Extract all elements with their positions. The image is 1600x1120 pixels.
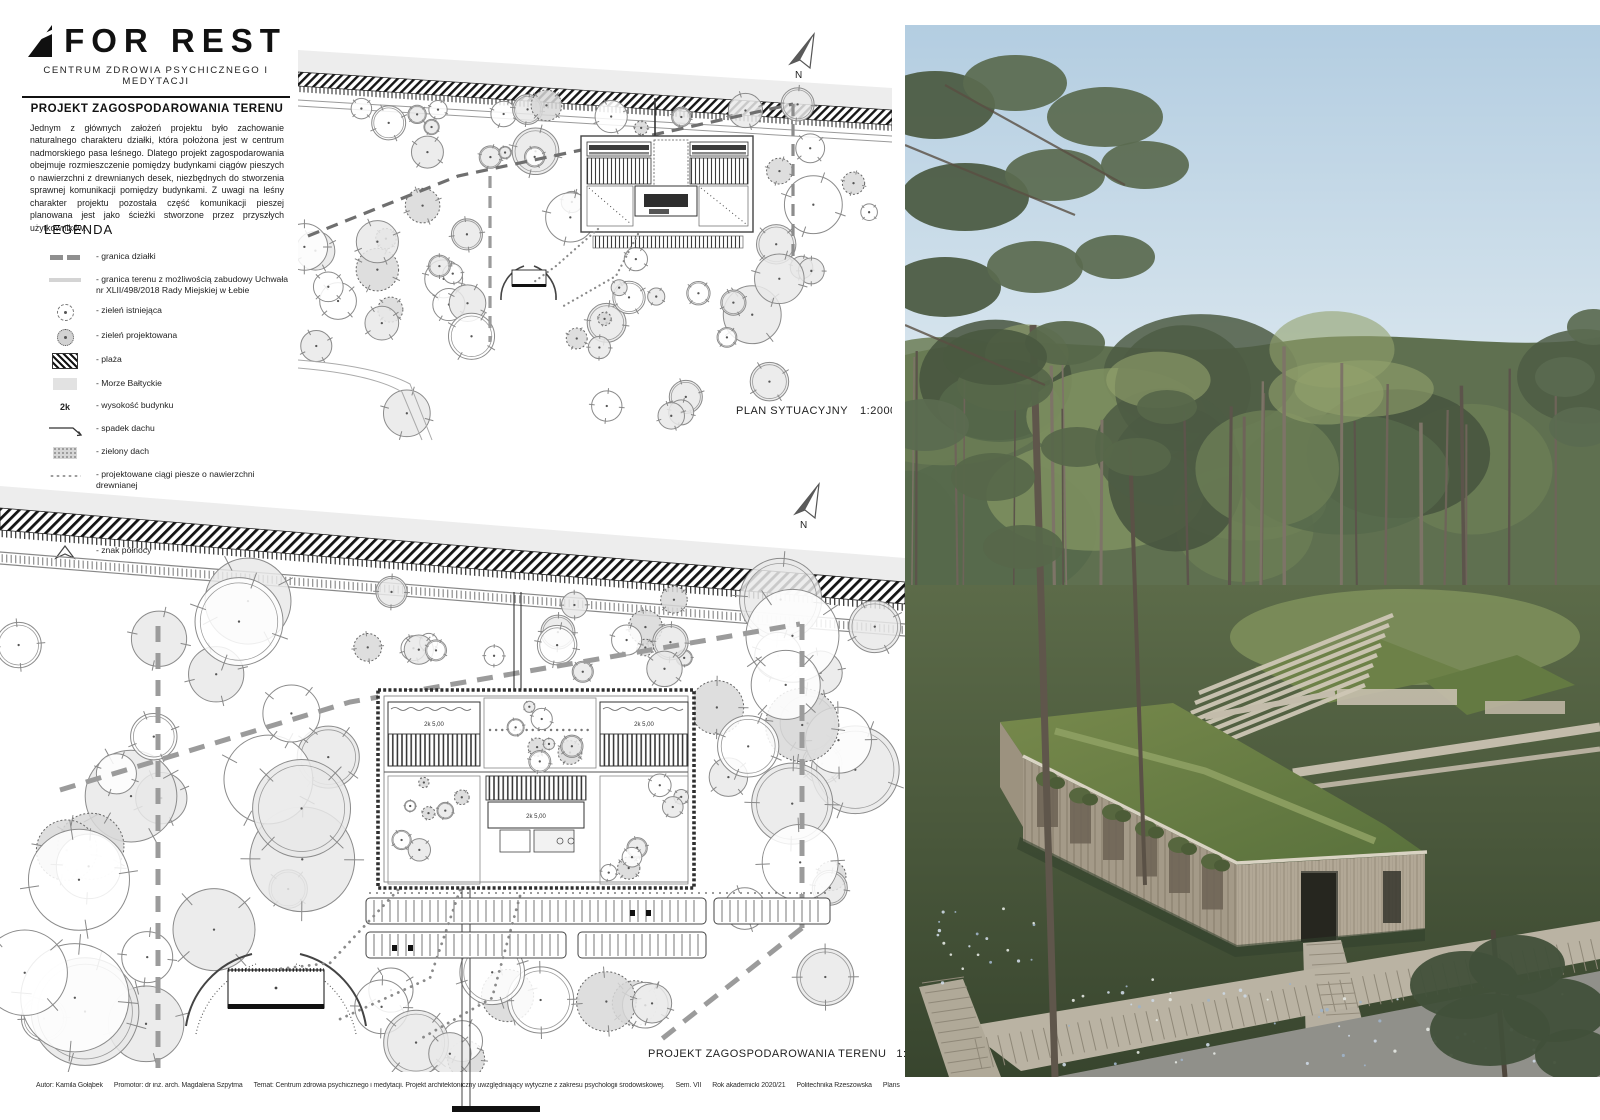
credit-segment: Politechnika Rzeszowska [796,1082,871,1089]
legend-item: - granica działki [44,250,292,265]
wing-label-center: 2k 5,00 [526,814,546,820]
intro-paragraph: Jednym z głównych założeń projektu było … [30,122,284,234]
roof-slope-icon [44,422,86,438]
intro-section: PROJEKT ZAGOSPODAROWANIA TERENU Jednym z… [30,103,284,234]
legend-item-label: - zieleń projektowana [96,329,177,342]
credit-segment: Promotor: dr inż. arch. Magdalena Szpytm… [114,1082,243,1089]
legend-item-label: - wysokość budynku [96,399,173,412]
plan1000-caption: PROJEKT ZAGOSPODAROWANIA TERENU1:1000 [648,1048,905,1060]
forrest-logo-icon [25,23,55,59]
legend-item: - zieleń istniejąca [44,304,292,321]
brand-subtitle: CENTRUM ZDROWIA PSYCHICZNEGO I MEDYTACJI [22,65,290,87]
legend-item-label: - plaża [96,353,122,366]
plan1000-north-label: N [800,520,807,531]
legend-item: - Morze Bałtyckie [44,377,292,392]
legend-item: - granica terenu z możliwością zabudowy … [44,273,292,297]
presentation-board: FOR REST CENTRUM ZDROWIA PSYCHICZNEGO I … [0,0,1600,1120]
wing-label-left: 2k 5,00 [424,722,444,728]
plan2000-north-arrow: N [790,34,814,81]
beach-hatch-icon [44,353,86,369]
intro-heading: PROJEKT ZAGOSPODAROWANIA TERENU [30,103,284,115]
credit-segment: Sem. VII [676,1082,702,1089]
site-plan-1-1000: 2k 5,00 2k 5,00 2k 5,00 [0,458,905,1072]
legend-item-label: - spadek dachu [96,422,155,435]
legend-item: - plaża [44,353,292,369]
plan2000-building [581,136,753,248]
plan1000-north-arrow: N [795,484,819,531]
legend-title: LEGENDA [44,222,292,237]
legend-item-label: - granica terenu z możliwością zabudowy … [96,273,292,297]
site-plan-1-2000: N PLAN SYTUACYJNY1:2000 [298,24,892,442]
buildable-line-icon [44,273,86,288]
height-icon: 2k [44,399,86,414]
credits-bar: Autor: Kamila GołąbekPromotor: dr inż. a… [36,1082,900,1089]
road-continuation [430,1072,560,1118]
plan1000-parking [366,892,830,958]
credit-segment: Temat: Centrum zdrowia psychicznego i me… [254,1082,665,1089]
render-visualization [905,25,1600,1077]
logo-text: FOR REST [64,22,287,60]
brand-block: FOR REST CENTRUM ZDROWIA PSYCHICZNEGO I … [22,22,290,98]
sea-icon [44,377,86,392]
boundary-dash-icon [44,250,86,265]
wing-label-right: 2k 5,00 [634,722,654,728]
credit-segment: Rok akademicki 2020/21 [712,1082,785,1089]
plan2000-north-label: N [795,70,802,81]
legend-item-label: - zieleń istniejąca [96,304,162,317]
legend-item-label: - zielony dach [96,445,149,458]
legend-item-label: - granica działki [96,250,156,263]
legend-item: - spadek dachu [44,422,292,438]
existing-green-icon [44,304,86,321]
legend-item-label: - Morze Bałtyckie [96,377,162,390]
legend-item: 2k- wysokość budynku [44,399,292,414]
legend-item: - zieleń projektowana [44,329,292,346]
plan2000-caption: PLAN SYTUACYJNY1:2000 [736,405,892,417]
credit-segment: Plansza 2 [883,1082,900,1089]
designed-green-icon [44,329,86,346]
credit-segment: Autor: Kamila Gołąbek [36,1082,103,1089]
